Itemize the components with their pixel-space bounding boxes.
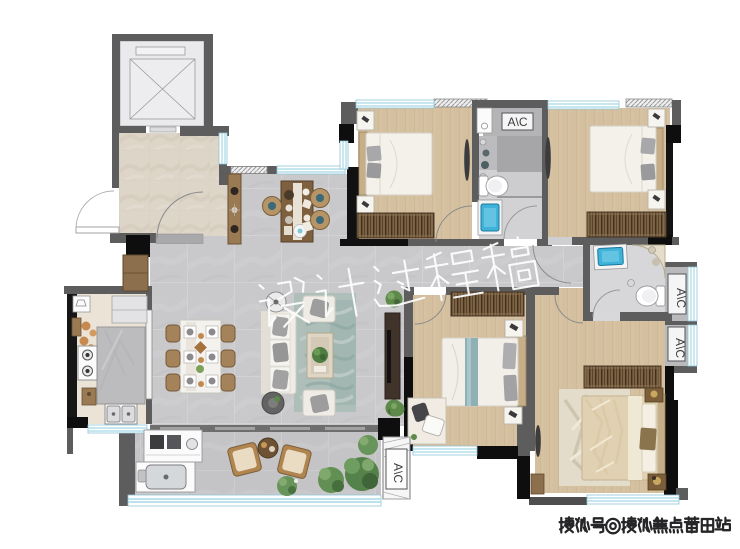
svg-text:A\C: A\C <box>674 288 688 308</box>
svg-text:A\C: A\C <box>391 463 405 483</box>
svg-text:A\C: A\C <box>507 115 527 129</box>
svg-text:A\C: A\C <box>673 338 687 358</box>
